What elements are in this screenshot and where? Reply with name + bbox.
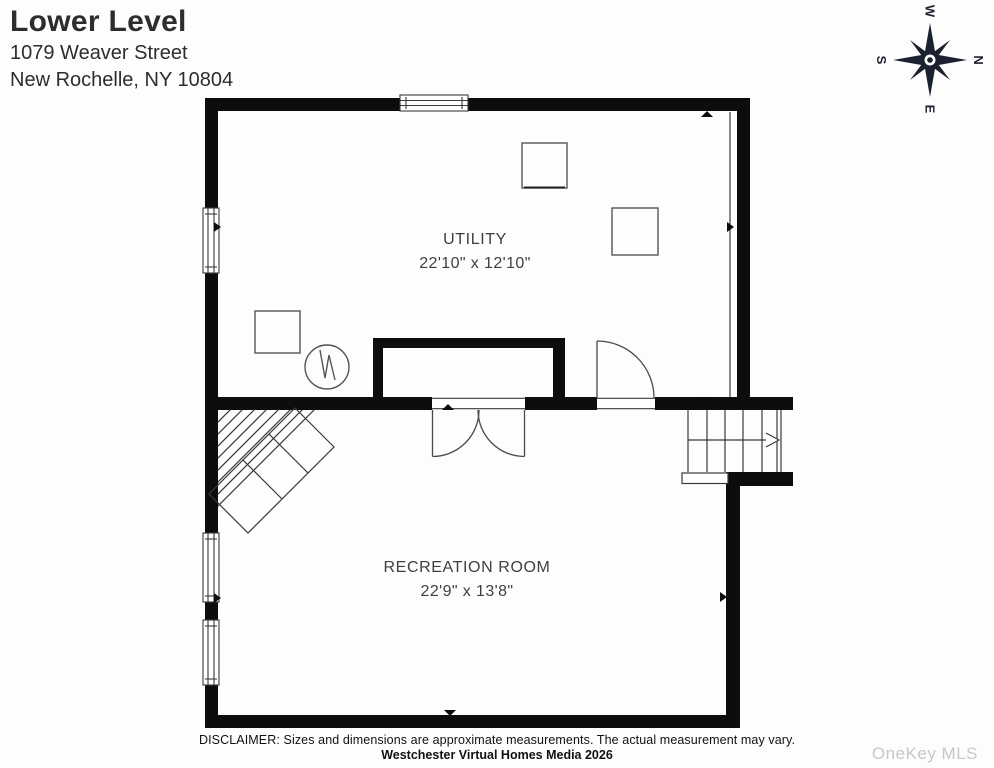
compass-label-south: S [874,56,889,65]
closet-double-door [433,410,525,457]
equipment-box-3 [255,311,300,353]
window-left-recreation-2 [203,620,219,685]
equipment-box-1 [522,143,567,188]
compass-label-north: N [971,55,986,64]
stair-doorway-opening [682,473,728,484]
floor-plan-canvas: N E S W [0,0,994,768]
closet-wall-left [373,338,383,397]
tick-top-right [701,111,713,117]
wall-bottom [205,715,740,728]
plan-header: Lower Level 1079 Weaver Street New Roche… [10,4,233,94]
address-line-1: 1079 Weaver Street [10,40,233,67]
wall-right-recreation [726,472,740,728]
diagonal-stair-band [209,408,334,533]
equipment-box-2 [612,208,658,255]
closet-wall-right [553,338,565,397]
window-top-utility [400,95,468,111]
pump-tank-symbol [305,345,349,389]
credit-text: Westchester Virtual Homes Media 2026 [0,748,994,762]
walls-group [205,98,793,728]
utility-door-opening [597,397,655,410]
compass-center-dot [927,57,933,63]
room-dimensions: 22'9" x 13'8" [384,580,551,604]
room-name: RECREATION ROOM [384,556,551,580]
wall-stair-bottom [728,472,793,486]
stair-direction-arrow [688,433,779,447]
staircase-diagonal-hatch [100,100,624,540]
hatch-lines [100,100,624,540]
room-dimensions: 22'10" x 12'10" [419,252,531,276]
tick-right-recreation [720,592,727,602]
compass-rose-icon: N E S W [874,5,986,114]
staircase-right [688,410,781,472]
wall-top [205,98,750,111]
window-left-utility [203,208,219,273]
address-line-2: New Rochelle, NY 10804 [10,67,233,94]
mls-watermark: OneKey MLS [872,744,978,764]
compass-label-west: W [923,5,938,18]
disclaimer-text: DISCLAIMER: Sizes and dimensions are app… [0,733,994,747]
tick-marks-group [214,111,734,716]
page-title: Lower Level [10,4,233,40]
wall-right-utility [737,98,750,410]
compass-label-east: E [923,105,938,114]
room-label-utility: UTILITY 22'10" x 12'10" [419,228,531,276]
utility-room-door [597,341,654,398]
room-label-recreation: RECREATION ROOM 22'9" x 13'8" [384,556,551,604]
room-name: UTILITY [419,228,531,252]
plan-footer: DISCLAIMER: Sizes and dimensions are app… [0,733,994,762]
diagonal-stair-step-1 [269,434,308,473]
window-left-recreation-1 [203,533,219,602]
closet-wall-top [373,338,565,348]
diagonal-stair-step-2 [243,460,282,499]
